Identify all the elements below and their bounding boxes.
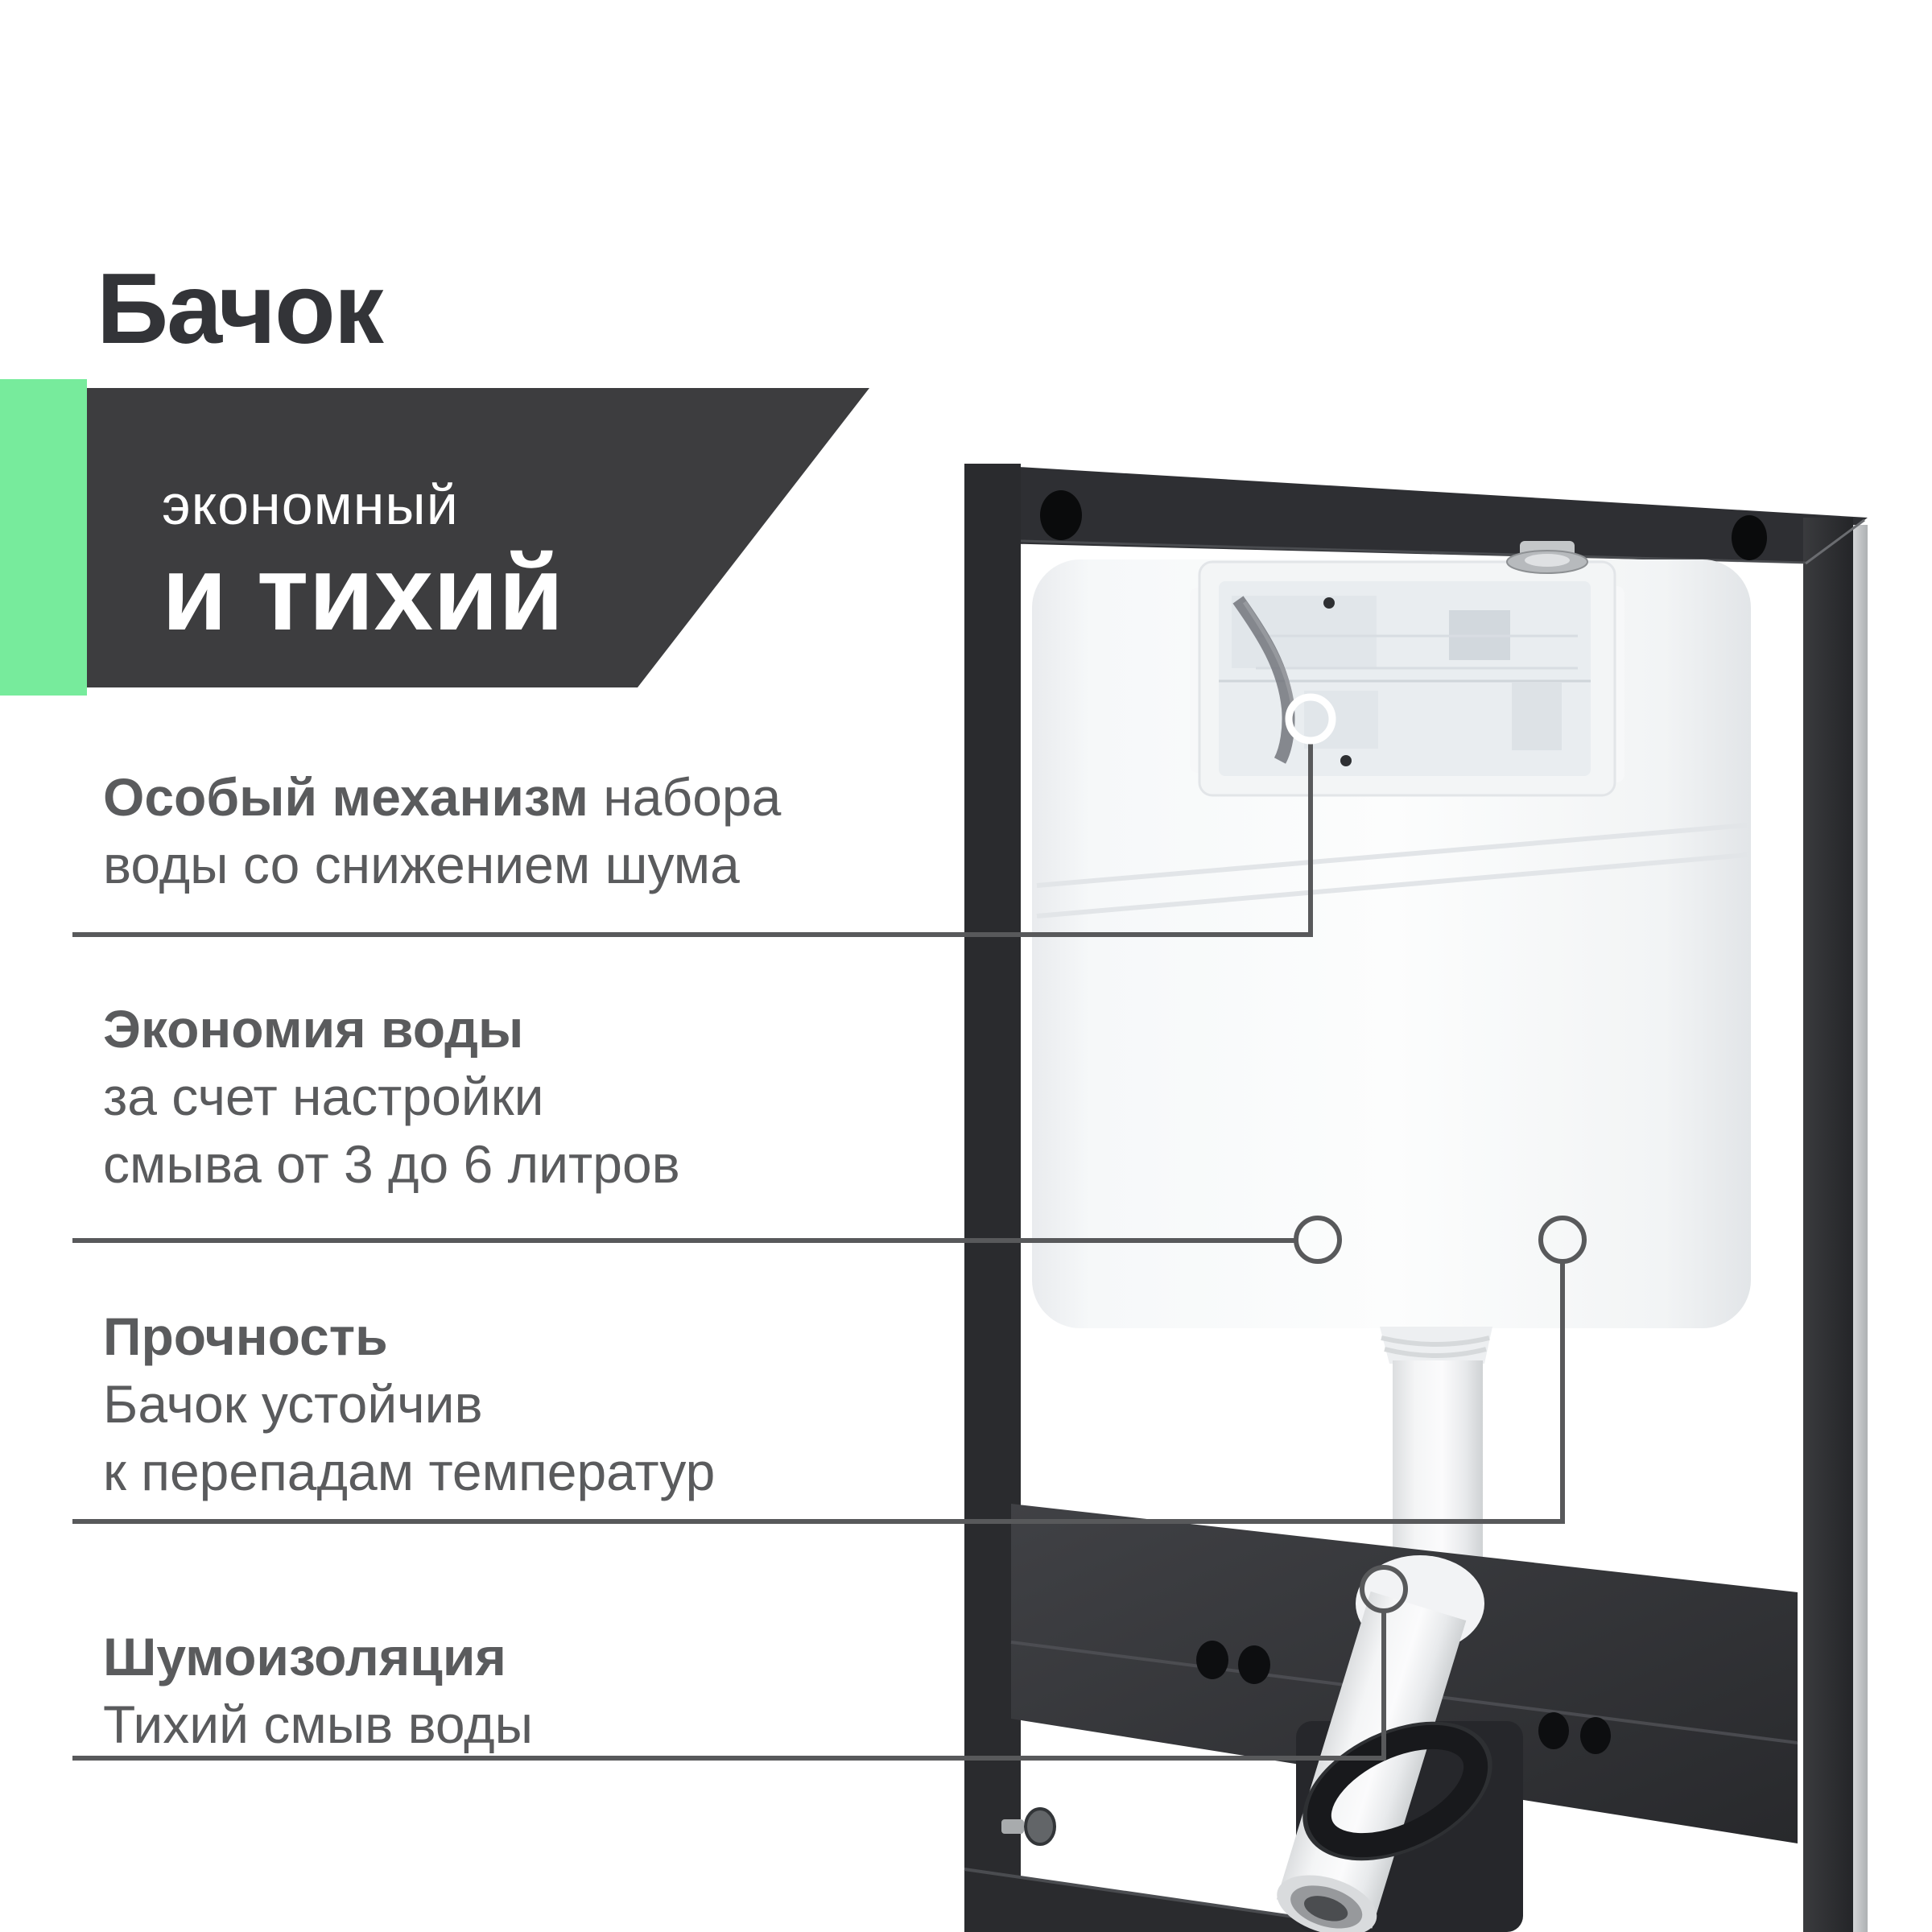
page-title: Бачок: [97, 257, 382, 361]
banner-accent-stripe: [0, 379, 87, 696]
feature-heading: Экономия воды: [103, 995, 680, 1063]
feature-text: смыва от 3 до 6 литров: [103, 1130, 680, 1198]
banner-line1: экономный: [162, 477, 563, 533]
frame-top-bar: [964, 464, 1868, 563]
banner: экономный и тихий: [162, 477, 563, 641]
banner-line2: и тихий: [162, 546, 563, 641]
feature-heading: Особый механизм набора: [103, 763, 781, 831]
feature-heading: Шумоизоляция: [103, 1623, 533, 1690]
frame-right-side-face: [1853, 525, 1868, 1932]
feature-heading: Прочность: [103, 1302, 715, 1370]
inspection-window: [1190, 562, 1624, 795]
feature-water-saving: Экономия воды за счет настройки смыва от…: [103, 995, 680, 1198]
frame-hole-left: [1040, 490, 1082, 540]
feature-durability: Прочность Бачок устойчив к перепадам тем…: [103, 1302, 715, 1505]
feature-fill-mechanism: Особый механизм набора воды со снижением…: [103, 763, 781, 898]
feature-text: за счет настройки: [103, 1063, 680, 1130]
frame-right-bar: [1803, 518, 1853, 1932]
feature-text: воды со снижением шума: [103, 831, 781, 898]
feature-noise-insulation: Шумоизоляция Тихий смыв воды: [103, 1623, 533, 1758]
feature-text: Тихий смыв воды: [103, 1690, 533, 1758]
feature-text: к перепадам температур: [103, 1438, 715, 1505]
frame-hole-right: [1732, 515, 1767, 560]
feature-text: Бачок устойчив: [103, 1370, 715, 1438]
